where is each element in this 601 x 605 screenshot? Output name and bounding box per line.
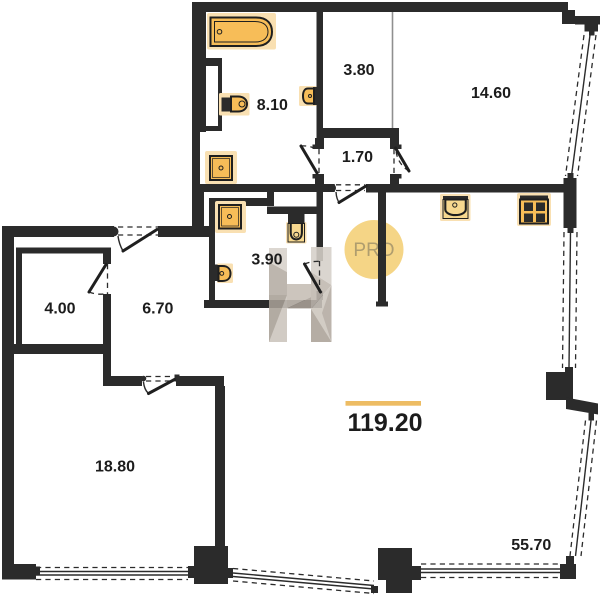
svg-text:55.70: 55.70 bbox=[511, 537, 551, 554]
svg-text:8.10: 8.10 bbox=[257, 97, 288, 114]
svg-text:1.70: 1.70 bbox=[342, 149, 373, 166]
svg-text:119.20: 119.20 bbox=[347, 409, 422, 437]
svg-text:3.90: 3.90 bbox=[251, 252, 282, 269]
svg-text:PRO: PRO bbox=[353, 240, 394, 261]
svg-text:6.70: 6.70 bbox=[142, 301, 173, 318]
svg-text:4.00: 4.00 bbox=[44, 301, 75, 318]
svg-text:3.80: 3.80 bbox=[343, 62, 374, 79]
svg-text:14.60: 14.60 bbox=[471, 85, 511, 102]
svg-text:18.80: 18.80 bbox=[95, 459, 135, 476]
